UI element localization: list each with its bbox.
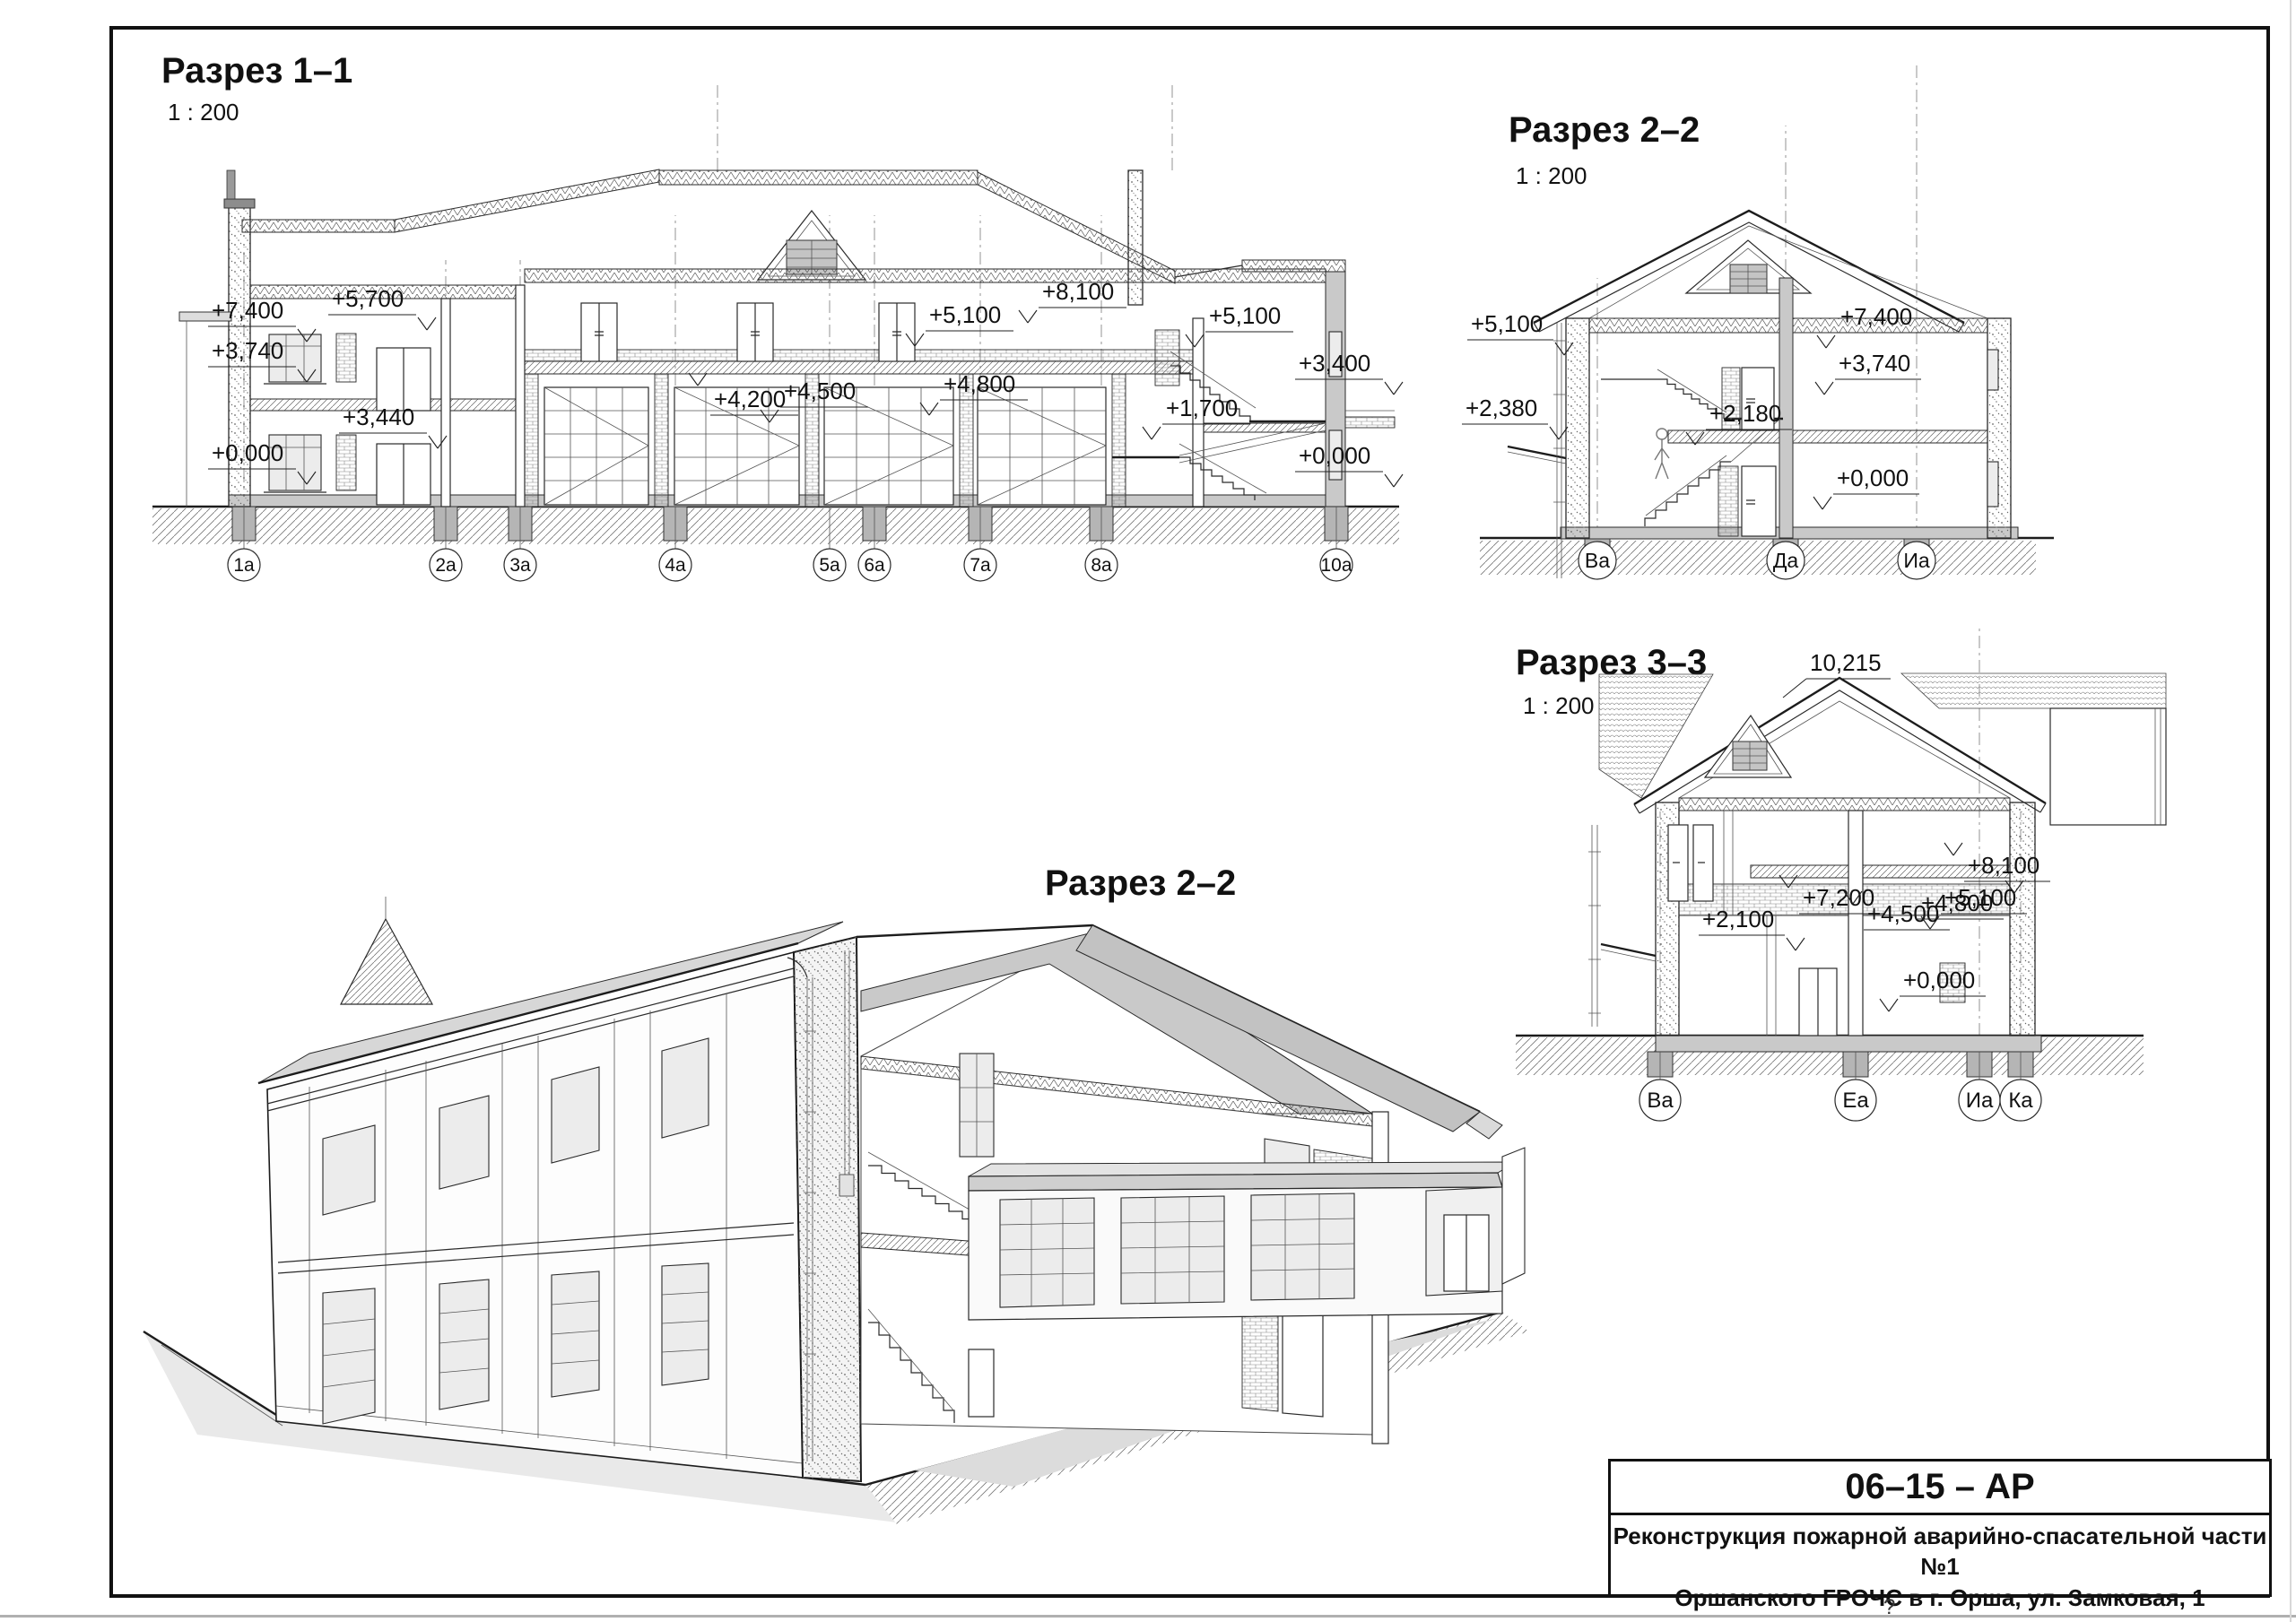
elevation-mark: +2,180 bbox=[1709, 400, 1781, 427]
elevation-mark: +7,400 bbox=[212, 297, 283, 324]
document-code: 06–15 – АР bbox=[1611, 1462, 2269, 1515]
elevation-mark: +0,000 bbox=[1299, 442, 1370, 469]
dormer bbox=[1705, 716, 1791, 777]
ground-hatch bbox=[1480, 541, 2036, 575]
axis-bubble-label: Да bbox=[1773, 549, 1799, 572]
right-background-roof bbox=[1901, 673, 2166, 708]
attic-floor bbox=[1679, 798, 2010, 811]
elevation-mark: +4,800 bbox=[944, 370, 1015, 397]
axis-bubble-label: Еа bbox=[1842, 1089, 1869, 1113]
section-title: Разрез 2–2 bbox=[1509, 110, 1700, 150]
right-canopy bbox=[1345, 417, 1395, 428]
downpipe bbox=[1588, 825, 1601, 1027]
elevation-mark: +4,800 bbox=[1921, 889, 1993, 916]
section-title: Разрез 1–1 bbox=[161, 51, 352, 91]
person-figure bbox=[1655, 429, 1669, 479]
svg-pattern-defs bbox=[0, 0, 2, 2]
doors bbox=[1718, 368, 1776, 536]
axis-bubble-label: 10а bbox=[1320, 555, 1352, 576]
left-flat-roof bbox=[242, 220, 395, 232]
elevation-mark: +4,200 bbox=[714, 386, 786, 412]
elevation-mark: +5,100 bbox=[1471, 310, 1543, 337]
axis-bubble-label: 2а bbox=[435, 555, 457, 576]
elevation-mark: +3,400 bbox=[1299, 350, 1370, 377]
axis-bubble-label: 3а bbox=[509, 555, 531, 576]
section-3-3-drawing: Разрез 3–3 1 : 200 bbox=[1498, 619, 2197, 1139]
elevation-mark: +4,500 bbox=[784, 377, 856, 404]
elevation-mark: +1,700 bbox=[1166, 395, 1238, 421]
garage-shelf-openings bbox=[1000, 1193, 1354, 1307]
elevation-mark: +5,700 bbox=[332, 285, 404, 312]
slab-garage bbox=[525, 361, 1197, 374]
right-exterior-wall bbox=[2010, 802, 2035, 1036]
ridge-elevation-mark: 10,215 bbox=[1810, 649, 1882, 676]
section-scale: 1 : 200 bbox=[1523, 692, 1595, 719]
axis-bubble-label: Иа bbox=[1966, 1089, 1994, 1113]
left-background-roof bbox=[1599, 674, 1713, 798]
page-right-divider bbox=[2290, 0, 2292, 1622]
mid-slab bbox=[1668, 430, 1987, 443]
elevation-mark: +5,100 bbox=[1209, 302, 1281, 329]
axis-bubble-label: 6а bbox=[864, 555, 885, 576]
axis-bubble-label: Ва bbox=[1647, 1089, 1674, 1113]
right-background-wing bbox=[2050, 708, 2166, 825]
ridge-band bbox=[659, 170, 978, 185]
page-bottom-divider bbox=[0, 1615, 2296, 1618]
axis-bubble-label: Иа bbox=[1903, 549, 1930, 572]
axis-bubble-label: 8а bbox=[1091, 555, 1112, 576]
elevation-mark: +5,100 bbox=[929, 301, 1001, 328]
elevation-mark: +0,000 bbox=[212, 439, 283, 466]
left-parapet-cap bbox=[224, 199, 255, 208]
section-scale: 1 : 200 bbox=[168, 99, 239, 126]
roof-chimney bbox=[1128, 170, 1143, 305]
garage-doors bbox=[544, 387, 1106, 505]
axis-bubble-label: 7а bbox=[970, 555, 991, 576]
downpipe bbox=[1553, 323, 1565, 578]
axis-bubble-label: 5а bbox=[819, 555, 840, 576]
elevation-mark: +7,200 bbox=[1803, 884, 1874, 911]
axis-bubble-label: Ва bbox=[1585, 549, 1610, 572]
elevation-mark: +0,000 bbox=[1837, 464, 1909, 491]
perspective-cutaway-drawing: Разрез 2–2 bbox=[117, 843, 1534, 1551]
elevation-mark: +3,740 bbox=[1839, 350, 1910, 377]
drawing-sheet: Разрез 1–1 1 : 200 bbox=[0, 0, 2296, 1622]
ground-hatch bbox=[152, 508, 1399, 544]
elevation-mark: +3,440 bbox=[343, 403, 414, 430]
rear-spire bbox=[341, 897, 432, 1004]
cut-wall-stipple bbox=[794, 937, 861, 1481]
center-wall bbox=[1779, 278, 1793, 538]
project-title-line2: Оршанского ГРОЧС в г. Орша, ул. Замковая… bbox=[1611, 1583, 2269, 1613]
elevation-mark: +3,740 bbox=[212, 337, 283, 364]
project-title: Реконструкция пожарной аварийно-спасател… bbox=[1611, 1515, 2269, 1613]
axis-bubble-label: 4а bbox=[665, 555, 686, 576]
axis-bubble-label: 1а bbox=[233, 555, 255, 576]
section-scale: 1 : 200 bbox=[1516, 162, 1587, 189]
elevation-mark: +7,400 bbox=[1840, 303, 1912, 330]
footer-question-mark: ? bbox=[1883, 1595, 1895, 1620]
right-roof-slope bbox=[978, 172, 1175, 283]
left-block-interior bbox=[264, 285, 525, 507]
ceiling-main bbox=[525, 269, 1326, 282]
elevation-mark: +8,100 bbox=[1968, 852, 2039, 879]
elevation-mark: +2,380 bbox=[1465, 395, 1537, 421]
axis-bubble-label: Ка bbox=[2008, 1089, 2033, 1113]
floor-slab bbox=[1656, 1036, 2041, 1052]
left-exterior-wall bbox=[1566, 318, 1589, 538]
garage-wing bbox=[969, 1148, 1525, 1320]
section-2-2-drawing: Разрез 2–2 1 : 200 bbox=[1453, 54, 2081, 610]
elevation-mark: +2,100 bbox=[1702, 906, 1774, 932]
left-canopy bbox=[1601, 944, 1656, 961]
title-block: 06–15 – АР Реконструкция пожарной аварий… bbox=[1608, 1459, 2272, 1597]
section-1-1-drawing: Разрез 1–1 1 : 200 bbox=[126, 36, 1444, 619]
elevation-mark: +0,000 bbox=[1903, 967, 1975, 993]
elevation-marks: +5,100 +2,380 +7,400 +3,740 +2,180 +0,00… bbox=[1462, 303, 1923, 509]
chimney bbox=[227, 170, 235, 199]
left-roof-slope bbox=[395, 169, 659, 232]
perspective-title: Разрез 2–2 bbox=[1045, 863, 1236, 903]
project-title-line1: Реконструкция пожарной аварийно-спасател… bbox=[1611, 1521, 2269, 1583]
lintel-band bbox=[525, 350, 1197, 361]
elevation-mark: +8,100 bbox=[1042, 278, 1114, 305]
